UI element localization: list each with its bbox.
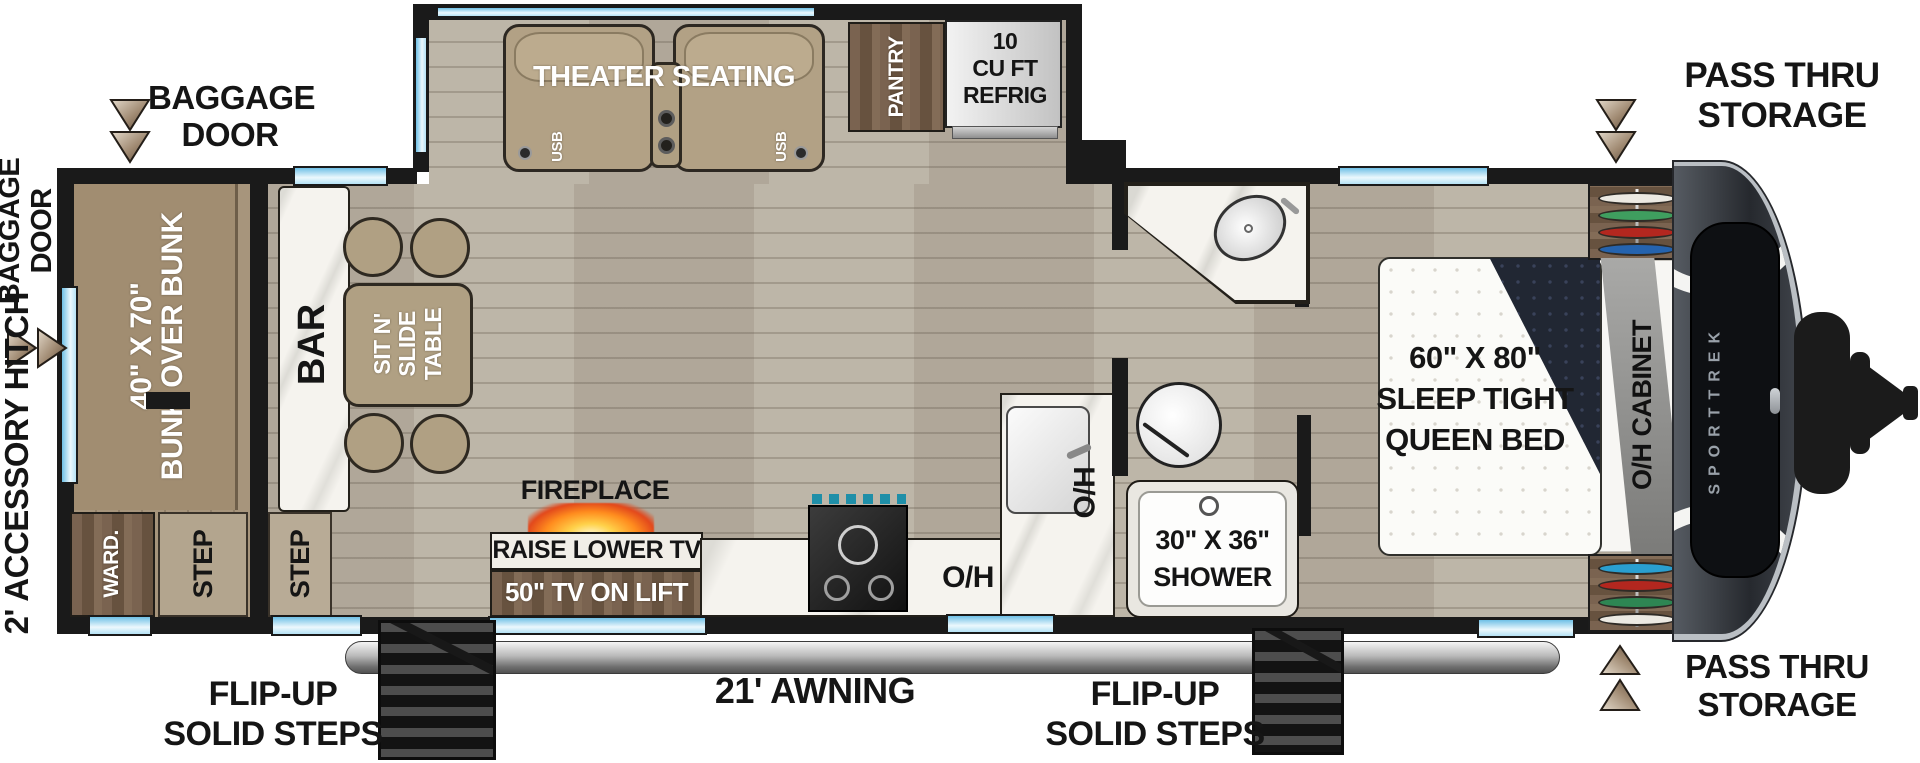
recliner-button-icon [518, 146, 532, 160]
baggage-door-top-arrow-icon [108, 96, 152, 166]
pass-thru-top-label: PASS THRU STORAGE [1648, 56, 1916, 136]
hanger-icon [1598, 209, 1676, 222]
window [488, 616, 707, 635]
fireplace-label: FIREPLACE [510, 476, 680, 504]
pantry-label: PANTRY [886, 18, 908, 136]
hanger-icon [1598, 192, 1676, 205]
burner-icon [868, 575, 894, 601]
steps-left-label: FLIP-UP SOLID STEPS [130, 674, 416, 754]
brand-label: SPORTTREK [1708, 229, 1725, 589]
window [436, 6, 816, 18]
window [271, 615, 362, 636]
hanger-icon [1598, 596, 1676, 609]
overhead-label-sink: O/H [1069, 458, 1100, 528]
stool [344, 413, 404, 473]
refrigerator-base [952, 126, 1058, 139]
window [1477, 618, 1575, 638]
overhead-cabinet-label: O/H CABINET [1628, 255, 1656, 555]
refrigerator-label: 10 CU FT REFRIG [948, 28, 1062, 109]
hanger-icon [1598, 613, 1676, 626]
awning-label: 21' AWNING [640, 672, 990, 709]
bunk-room-wall [250, 184, 268, 617]
baggage-door-top-label: BAGGAGE DOOR [148, 80, 312, 154]
bunk-label: 40" X 70" BUNK OVER BUNK [126, 116, 188, 576]
shower-label: 30" X 36" SHOWER [1126, 522, 1299, 597]
cupholder-icon [658, 110, 675, 127]
tv-lift-label: 50" TV ON LIFT [490, 579, 703, 606]
pass-thru-top-arrow-icon [1594, 96, 1638, 166]
step-label: STEP [286, 509, 314, 619]
window [414, 36, 428, 154]
accessory-hitch-label: 2' ACCESSORY HITCH [0, 228, 34, 698]
hitch-bar [1794, 312, 1850, 494]
window [293, 166, 388, 186]
stool [343, 217, 403, 277]
table-label: SIT N' SLIDE TABLE [370, 284, 446, 404]
hanger-icon [1598, 579, 1676, 592]
usb-label-right: USB [774, 125, 790, 169]
shower-head-icon [1199, 496, 1219, 516]
window [1338, 166, 1489, 186]
cap-window-panel [1690, 222, 1780, 578]
wardrobe-label: WARD. [101, 509, 123, 619]
cap-emblem-icon [1770, 388, 1780, 414]
bath-wall-lower-left [1112, 358, 1128, 476]
recliner-button-icon [794, 146, 808, 160]
bed-label: 60" X 80" SLEEP TIGHT QUEEN BED [1360, 338, 1590, 461]
baggage-door-marker [146, 392, 190, 409]
pass-thru-bottom-label: PASS THRU STORAGE [1648, 648, 1906, 725]
stool [410, 414, 470, 474]
burner-icon [824, 575, 850, 601]
theater-seating-label: THEATER SEATING [503, 62, 825, 92]
tv-raise-label: RAISE LOWER TV [490, 537, 703, 563]
window [88, 615, 152, 636]
front-cap [1672, 160, 1808, 642]
wall-corner-block [1066, 140, 1126, 184]
step-label: STEP [189, 509, 217, 619]
cupholder-icon [658, 137, 675, 154]
window [946, 614, 1055, 634]
hanger-icon [1598, 562, 1676, 575]
awning-rail [345, 641, 1560, 674]
pass-thru-bottom-arrow-icon [1598, 644, 1642, 714]
rv-floorplan: THEATER SEATING USB USB PANTRY 10 CU FT … [0, 0, 1920, 763]
hitch-collar [1850, 352, 1870, 454]
burner-icon [838, 525, 878, 565]
window [60, 286, 78, 484]
hanger-icon [1598, 226, 1676, 239]
hitch-tip [1903, 386, 1918, 420]
overhead-label-kitchen: O/H [930, 562, 1006, 593]
stove-knobs [812, 494, 906, 504]
bath-sink-drain [1244, 224, 1253, 233]
stool [410, 218, 470, 278]
usb-label-left: USB [550, 125, 566, 169]
steps-right-label: FLIP-UP SOLID STEPS [1012, 674, 1298, 754]
bar-label: BAR [293, 285, 333, 405]
bath-wall-bed-side [1297, 415, 1311, 536]
